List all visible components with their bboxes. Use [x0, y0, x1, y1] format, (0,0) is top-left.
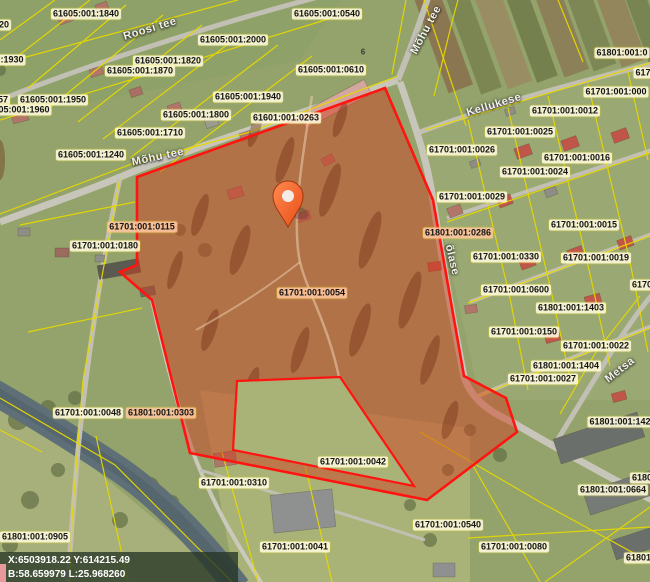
- ui-edge-fragment: [0, 564, 6, 582]
- coordinate-bl: B:58.659979 L:25.968260: [8, 568, 238, 582]
- map-canvas[interactable]: [0, 0, 650, 582]
- cadastral-map-view[interactable]: 61605:001:18402061605:001:054061605:001:…: [0, 0, 650, 582]
- coordinate-xy: X:6503918.22 Y:614215.49: [8, 554, 238, 568]
- coordinate-readout: X:6503918.22 Y:614215.49 B:58.659979 L:2…: [0, 552, 238, 582]
